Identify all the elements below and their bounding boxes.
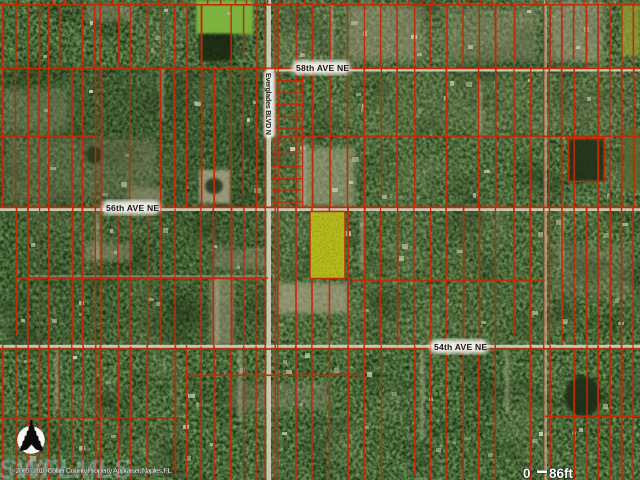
svg-text:58th AVE NE: 58th AVE NE	[296, 63, 349, 73]
svg-text:56th AVE NE: 56th AVE NE	[106, 203, 159, 213]
svg-text:54th AVE NE: 54th AVE NE	[434, 342, 487, 352]
svg-text:86ft: 86ft	[549, 466, 574, 480]
svg-text:Everglades BLVD N: Everglades BLVD N	[264, 73, 273, 135]
svg-text:0: 0	[523, 466, 531, 480]
svg-text:©2005 - 2010 Collier County Pr: ©2005 - 2010 Collier County Property App…	[11, 466, 172, 475]
